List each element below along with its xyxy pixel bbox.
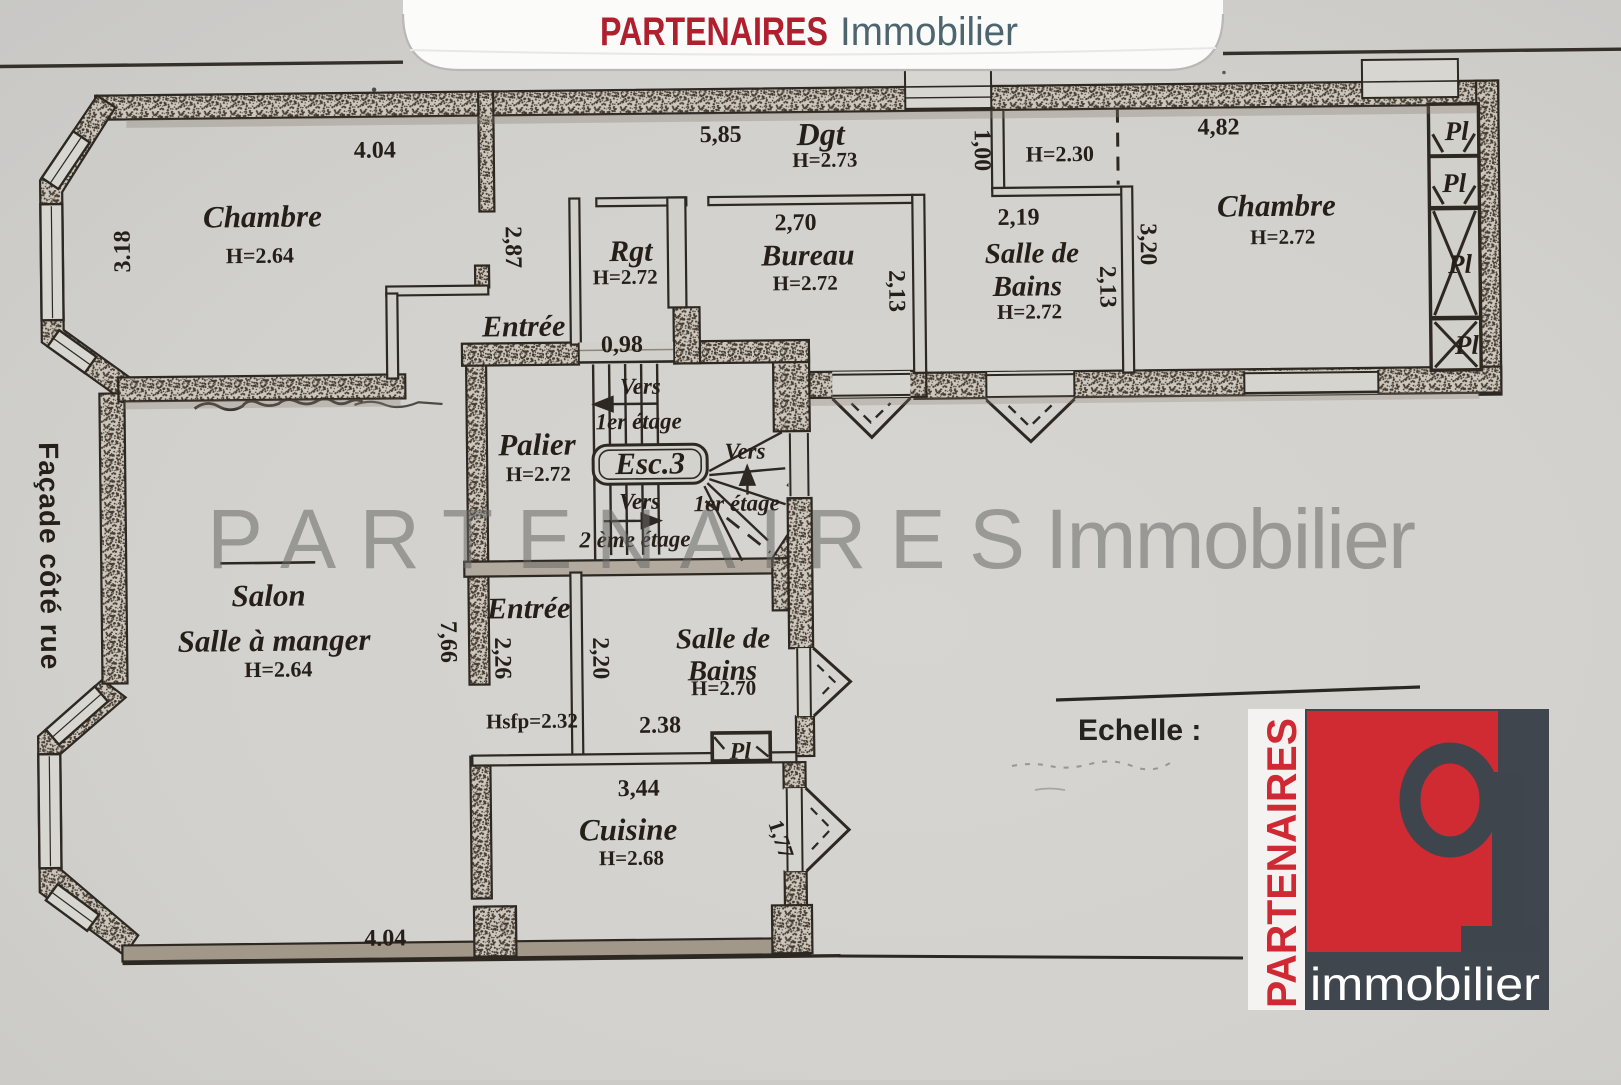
svg-text:4.04: 4.04: [364, 925, 406, 951]
svg-text:PARTENAIRES: PARTENAIRES: [1258, 718, 1305, 1008]
svg-text:2,26: 2,26: [489, 637, 515, 679]
svg-text:1,00: 1,00: [969, 129, 995, 171]
svg-text:PARTENAIRES: PARTENAIRES: [600, 10, 828, 54]
svg-text:4.04: 4.04: [354, 137, 396, 163]
svg-text:Bains: Bains: [991, 270, 1062, 303]
svg-text:3.18: 3.18: [110, 230, 136, 272]
svg-text:H=2.72: H=2.72: [506, 462, 571, 487]
svg-text:Chambre: Chambre: [1217, 187, 1336, 223]
svg-text:H=2.72: H=2.72: [1250, 225, 1315, 250]
svg-text:Echelle :: Echelle :: [1078, 714, 1201, 747]
svg-text:Palier: Palier: [497, 427, 577, 463]
svg-text:Entrée: Entrée: [486, 592, 571, 626]
svg-text:Pl: Pl: [1447, 249, 1473, 279]
svg-text:Pl: Pl: [1441, 168, 1467, 198]
svg-text:Esc.3: Esc.3: [614, 445, 685, 481]
svg-text:2,13: 2,13: [883, 270, 909, 312]
svg-text:H=2.64: H=2.64: [226, 243, 294, 269]
svg-text:Hsfp=2.32: Hsfp=2.32: [486, 709, 578, 734]
svg-text:Pl: Pl: [728, 739, 751, 765]
svg-text:Salle de: Salle de: [985, 237, 1080, 270]
svg-text:H=2.30: H=2.30: [1026, 141, 1094, 167]
svg-text:1er étage: 1er étage: [595, 408, 681, 434]
svg-text:Rgt: Rgt: [608, 235, 654, 268]
svg-text:Salle à manger: Salle à manger: [177, 622, 371, 659]
svg-text:Vers: Vers: [724, 438, 765, 463]
svg-text:3,44: 3,44: [618, 776, 660, 802]
svg-text:Vers: Vers: [620, 374, 661, 399]
svg-text:3,20: 3,20: [1135, 223, 1161, 265]
svg-text:Salle de: Salle de: [676, 622, 771, 655]
svg-text:2,70: 2,70: [774, 210, 816, 236]
svg-text:Dgt: Dgt: [795, 116, 845, 153]
svg-text:Immobilier: Immobilier: [840, 10, 1018, 54]
svg-text:Bureau: Bureau: [760, 239, 855, 273]
svg-text:immobilier: immobilier: [1310, 958, 1540, 1010]
svg-text:2.38: 2.38: [639, 712, 681, 738]
svg-text:Pl: Pl: [1454, 330, 1480, 360]
svg-text:H=2.72: H=2.72: [773, 271, 838, 296]
svg-text:0,98: 0,98: [601, 332, 643, 358]
svg-text:H=2.72: H=2.72: [997, 299, 1062, 324]
svg-text:H=2.64: H=2.64: [244, 656, 312, 682]
svg-text:H=2.68: H=2.68: [599, 846, 664, 871]
svg-text:Façade côté rue: Façade côté rue: [33, 442, 66, 671]
svg-text:2,87: 2,87: [500, 226, 526, 268]
svg-text:7,66: 7,66: [435, 621, 461, 663]
svg-text:Cuisine: Cuisine: [579, 811, 678, 847]
svg-text:H=2.72: H=2.72: [592, 265, 657, 290]
svg-text:2,13: 2,13: [1094, 266, 1120, 308]
svg-text:Entrée: Entrée: [481, 310, 566, 344]
svg-text:Chambre: Chambre: [203, 198, 322, 234]
svg-text:H=2.73: H=2.73: [792, 147, 857, 172]
svg-text:2,20: 2,20: [587, 637, 613, 679]
svg-text:H=2.70: H=2.70: [691, 676, 756, 701]
svg-text:5,85: 5,85: [699, 122, 741, 148]
svg-text:PARTENAIRESImmobilier: PARTENAIRESImmobilier: [207, 492, 1416, 586]
svg-text:2,19: 2,19: [997, 204, 1039, 230]
svg-text:4,82: 4,82: [1197, 114, 1239, 140]
svg-text:Pl: Pl: [1443, 116, 1469, 146]
